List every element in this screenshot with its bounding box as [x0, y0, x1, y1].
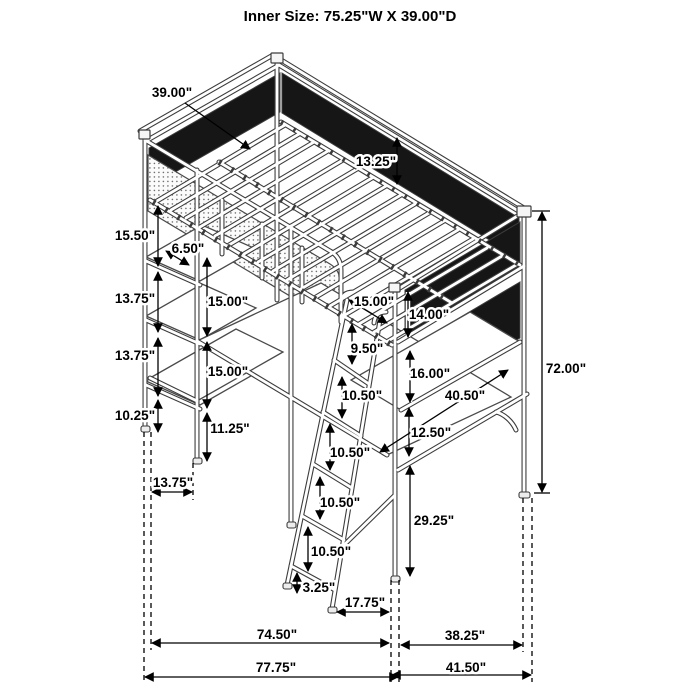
desk-leg-foot [287, 522, 296, 528]
shelf-post-foot [193, 458, 202, 464]
dim-label-ladder-rung-3: 10.50" [320, 495, 360, 510]
dim-label-outer-width: 77.75" [256, 660, 296, 675]
bed-dimension-diagram: 39.00" 13.25" 15.50" 6.50" 13.75" 15.00"… [0, 0, 700, 700]
dim-label-shelf-gap-2: 13.75" [115, 291, 155, 306]
dim-label-desk-clearance-lower: 15.00" [208, 364, 248, 379]
dim-label-guard-height: 13.25" [356, 154, 396, 169]
dim-label-inner-width: 74.50" [257, 627, 297, 642]
dim-label-ladder-rung-2: 10.50" [330, 445, 370, 460]
dim-label-ladder-opening: 15.00" [354, 294, 394, 309]
dim-label-shelf-gap-1: 15.50" [115, 228, 155, 243]
dim-label-right-outer-depth: 41.50" [446, 660, 486, 675]
right-post-cap [517, 206, 531, 217]
right-post-foot [519, 492, 530, 498]
dim-label-ladder-foot-height: 3.25" [303, 580, 336, 595]
dim-label-shelf-gap-4: 10.25" [115, 408, 155, 423]
dim-label-ladder-rung-1: 10.50" [342, 388, 382, 403]
dim-label-right-inner-depth: 38.25" [445, 628, 485, 643]
dim-label-top-depth: 39.00" [152, 85, 192, 100]
dim-label-lower-rail-height: 29.25" [414, 513, 454, 528]
diagram-title: Inner Size: 75.25"W X 39.00"D [0, 8, 700, 25]
dim-label-shelf-gap-3: 13.75" [115, 348, 155, 363]
dim-label-lower-desk-width: 40.50" [445, 388, 485, 403]
dim-label-ladder-rung-4: 10.50" [311, 544, 351, 559]
diagram-canvas: Inner Size: 75.25"W X 39.00"D [0, 0, 700, 700]
dim-label-shelf-width: 13.75" [153, 475, 193, 490]
dim-label-desk-clearance-upper: 15.00" [208, 294, 248, 309]
left-post-cap [139, 130, 150, 139]
front-post-cap [389, 283, 400, 292]
dim-label-ladder-foot-offset: 17.75" [345, 595, 385, 610]
dim-label-right-panel-upper: 14.00" [409, 307, 449, 322]
dim-label-right-panel-lower: 16.00" [410, 366, 450, 381]
ladder-left-foot [283, 583, 292, 589]
left-post-foot [141, 426, 150, 432]
dim-label-desk-leg-height: 11.25" [210, 421, 249, 436]
dim-label-shelf-setback: 6.50" [172, 241, 205, 256]
ladder-right-foot [328, 607, 337, 613]
back-post-cap [271, 53, 283, 63]
dim-label-total-height: 72.00" [546, 361, 586, 376]
dim-label-ladder-top-gap: 9.50" [351, 341, 384, 356]
dim-label-lower-desk-gap: 12.50" [411, 425, 451, 440]
